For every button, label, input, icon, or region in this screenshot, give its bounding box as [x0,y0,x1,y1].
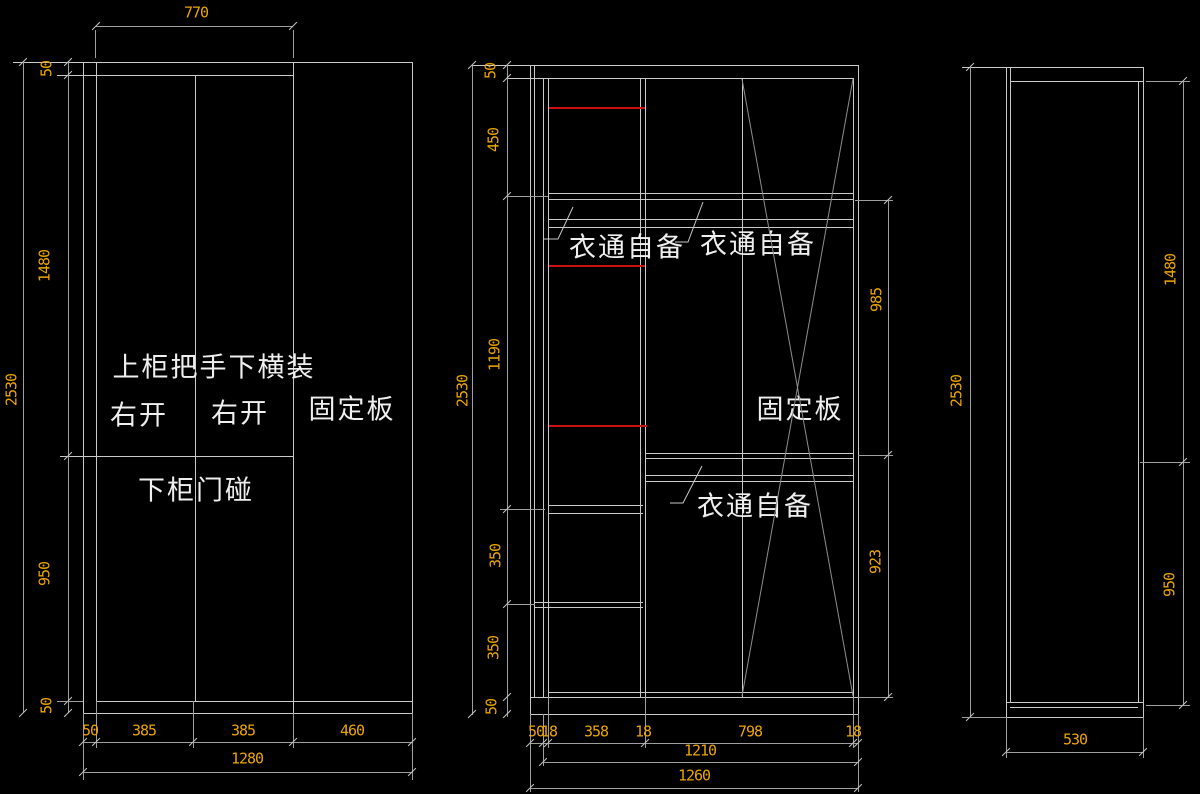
side-bottom-width-dim: 530 [1063,733,1087,748]
side-right-seg-dim: 1480 [1164,254,1179,286]
cad-drawing-canvas: 770 2530 50 1480 950 50 50 385 385 460 [0,0,1200,794]
side-bottom-inner-edge [1006,702,1143,703]
side-back-panel-line [1138,81,1139,702]
side-bottom-edge [1006,717,1143,718]
dim-line [970,67,971,717]
side-top-edge [962,67,1143,68]
side-overall-height-dim: 2530 [950,375,965,407]
side-view: 2530 1480 950 530 [0,0,1200,794]
dim-line [1006,752,1143,753]
side-left-inner-edge [1010,67,1011,702]
side-left-edge [1006,67,1007,717]
side-bottom-panel-line [1010,707,1138,708]
ext-line [962,717,1006,718]
side-top-inner-edge [1010,81,1143,82]
side-right-edge [1143,67,1144,717]
side-right-seg-dim: 950 [1163,573,1178,597]
dim-line [1183,81,1184,705]
